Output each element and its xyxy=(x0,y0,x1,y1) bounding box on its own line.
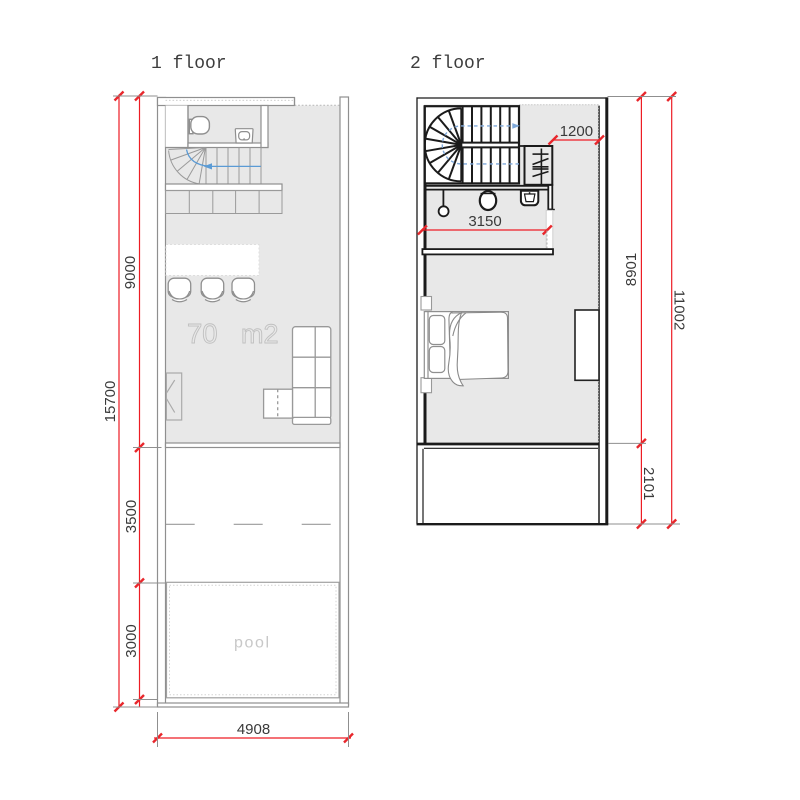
svg-text:9000: 9000 xyxy=(122,256,139,289)
svg-text:1 floor: 1 floor xyxy=(151,54,227,74)
svg-text:2101: 2101 xyxy=(640,467,657,500)
svg-text:4908: 4908 xyxy=(237,721,270,738)
svg-text:1200: 1200 xyxy=(560,123,593,140)
svg-text:pool: pool xyxy=(234,635,271,652)
svg-text:2 floor: 2 floor xyxy=(410,54,486,74)
svg-text:3150: 3150 xyxy=(468,213,501,230)
svg-text:3500: 3500 xyxy=(123,500,140,533)
svg-text:8901: 8901 xyxy=(623,253,640,286)
svg-text:m2: m2 xyxy=(241,319,279,349)
svg-text:70: 70 xyxy=(187,318,218,349)
svg-text:3000: 3000 xyxy=(123,624,140,657)
svg-text:15700: 15700 xyxy=(102,381,119,423)
svg-text:11002: 11002 xyxy=(671,290,688,331)
